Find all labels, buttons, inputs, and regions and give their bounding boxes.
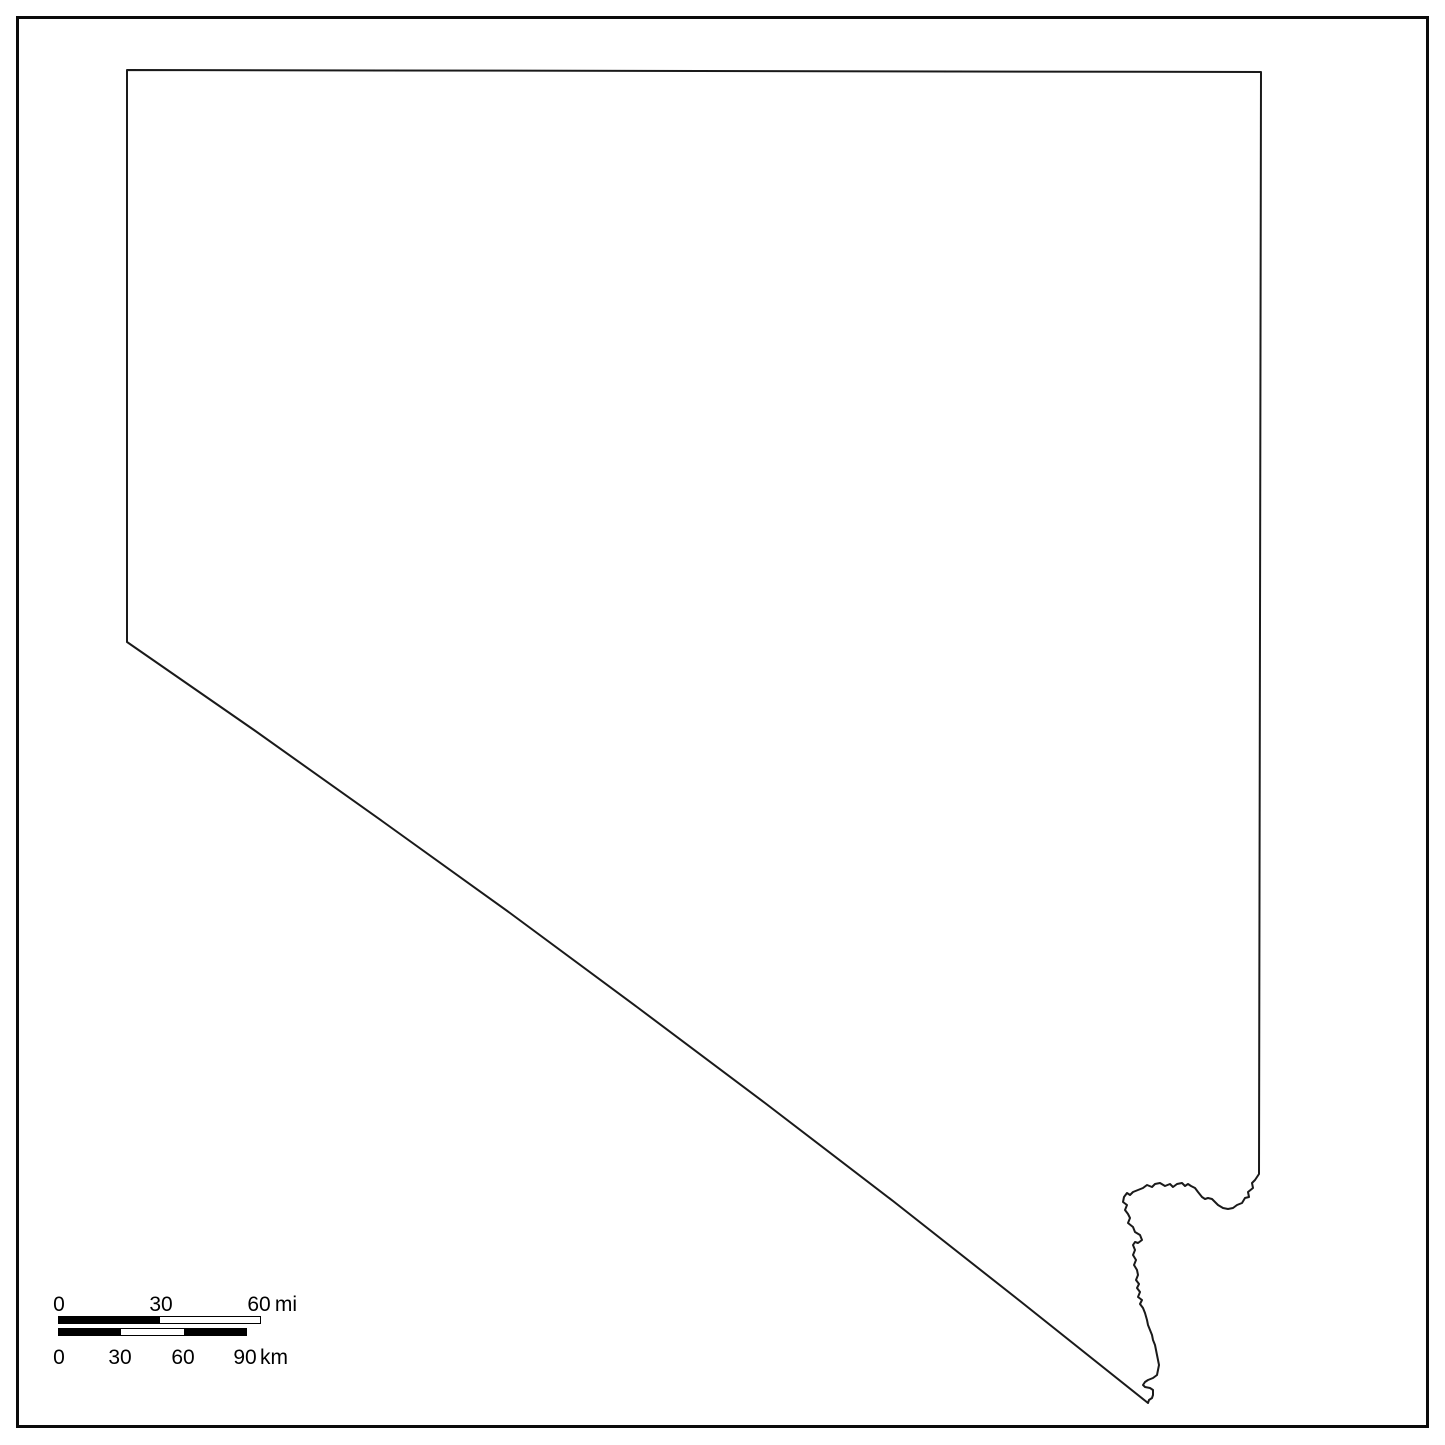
- nevada-state-outline: [127, 70, 1261, 1403]
- nevada-outline-map: [0, 0, 1445, 1445]
